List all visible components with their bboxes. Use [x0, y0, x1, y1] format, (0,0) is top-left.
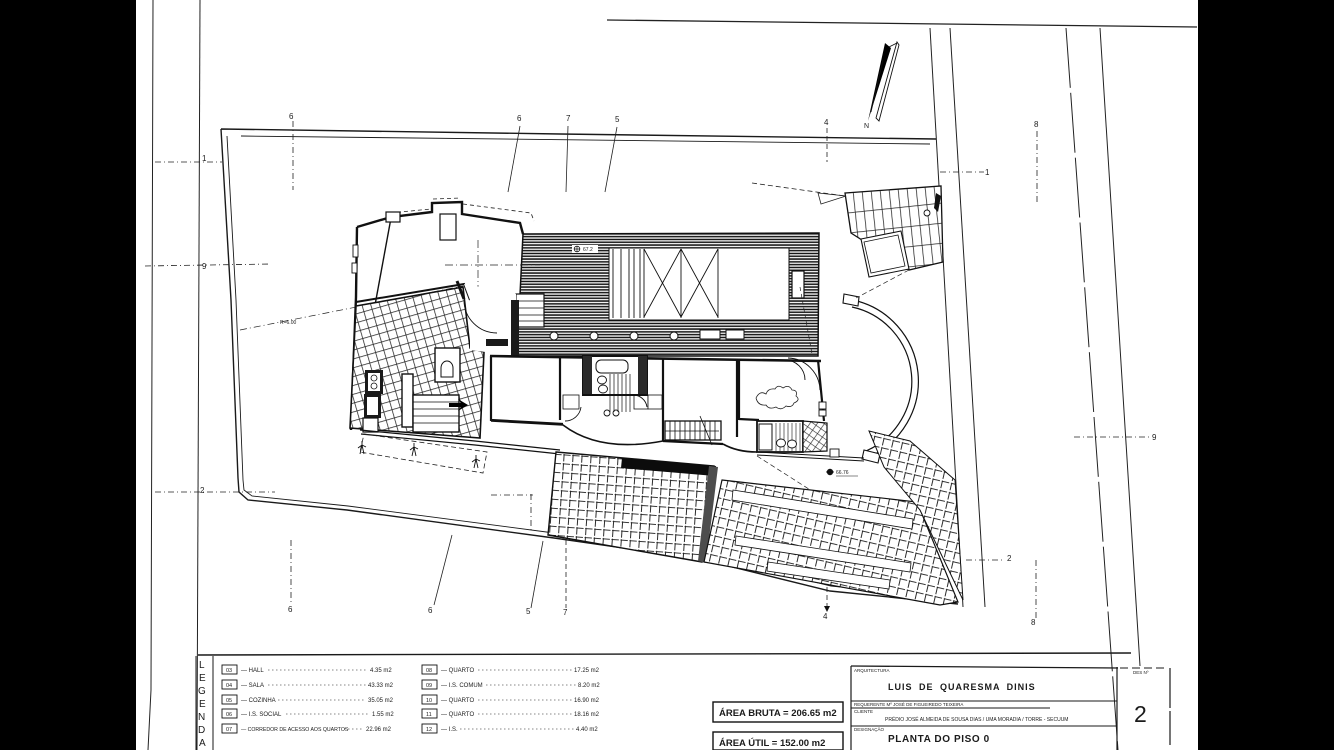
svg-text:03: 03	[226, 668, 232, 674]
svg-text:— HALL: — HALL	[241, 668, 264, 674]
svg-text:6: 6	[517, 114, 522, 123]
svg-text:4: 4	[824, 118, 829, 127]
svg-text:17.25 m2: 17.25 m2	[574, 668, 600, 674]
svg-text:PLANTA DO PISO 0: PLANTA DO PISO 0	[888, 734, 990, 745]
svg-text:2: 2	[200, 486, 205, 495]
svg-text:22.96 m2: 22.96 m2	[366, 727, 392, 733]
svg-text:DESIGNAÇÃO: DESIGNAÇÃO	[854, 726, 885, 732]
svg-text:04: 04	[226, 683, 232, 689]
svg-text:18.16 m2: 18.16 m2	[574, 712, 600, 718]
svg-text:N: N	[864, 123, 869, 130]
svg-text:66.76: 66.76	[836, 470, 849, 476]
svg-text:2: 2	[1007, 554, 1012, 563]
svg-text:6: 6	[428, 606, 433, 615]
svg-text:— I.S. SOCIAL: — I.S. SOCIAL	[241, 712, 282, 718]
svg-text:— I.S. COMUM: — I.S. COMUM	[441, 683, 483, 689]
svg-text:08: 08	[426, 668, 432, 674]
svg-text:PRÉDIO JOSÉ ALMEIDA DE SOU: PRÉDIO JOSÉ ALMEIDA DE SOUSA DIAS / UMA …	[885, 716, 1068, 723]
svg-text:16.90 m2: 16.90 m2	[574, 698, 600, 704]
svg-text:— COZINHA: — COZINHA	[241, 698, 276, 704]
svg-text:2: 2	[1134, 701, 1147, 727]
svg-text:D: D	[198, 725, 205, 736]
svg-text:8.20 m2: 8.20 m2	[578, 683, 600, 689]
svg-text:— CORREDOR DE ACESSO AOS QUART: — CORREDOR DE ACESSO AOS QUARTOS	[241, 727, 349, 733]
svg-text:1: 1	[202, 154, 207, 163]
svg-text:REQUERENTE Mº JOSÉ DE FIGUE: REQUERENTE Mº JOSÉ DE FIGUEIREDO TEIXEIR…	[854, 701, 963, 707]
svg-text:L: L	[199, 660, 205, 671]
svg-text:43.33 m2: 43.33 m2	[368, 683, 394, 689]
svg-text:ÁREA ÚTIL = 152.00 m2: ÁREA ÚTIL = 152.00 m2	[719, 737, 825, 749]
svg-text:— QUARTO: — QUARTO	[441, 668, 474, 674]
svg-text:4: 4	[823, 612, 828, 621]
svg-text:5: 5	[615, 115, 620, 124]
svg-text:07: 07	[226, 727, 232, 733]
svg-text:7: 7	[563, 608, 568, 617]
svg-text:— QUARTO: — QUARTO	[441, 698, 474, 704]
svg-text:CLIENTE: CLIENTE	[854, 709, 873, 714]
svg-text:6: 6	[289, 112, 294, 121]
svg-text:— QUARTO: — QUARTO	[441, 712, 474, 718]
svg-text:E: E	[199, 699, 206, 710]
svg-text:ÁREA BRUTA = 206.65 m2: ÁREA BRUTA = 206.65 m2	[719, 708, 837, 719]
svg-text:5: 5	[526, 607, 531, 616]
svg-text:6: 6	[288, 605, 293, 614]
svg-text:09: 09	[426, 683, 432, 689]
svg-text:8: 8	[1034, 120, 1039, 129]
svg-text:9: 9	[202, 262, 207, 271]
svg-text:9: 9	[1152, 433, 1157, 442]
svg-text:DES Nº: DES Nº	[1133, 670, 1149, 675]
svg-text:7: 7	[566, 114, 571, 123]
svg-text:05: 05	[226, 698, 232, 704]
svg-text:ARQUITECTURA: ARQUITECTURA	[854, 668, 890, 673]
svg-text:G: G	[198, 686, 206, 697]
svg-text:4.35 m2: 4.35 m2	[370, 668, 392, 674]
svg-text:1.55 m2: 1.55 m2	[372, 712, 394, 718]
svg-text:11: 11	[426, 712, 432, 718]
svg-text:— SALA: — SALA	[241, 683, 264, 689]
svg-text:N: N	[198, 712, 205, 723]
svg-text:R=6.00: R=6.00	[280, 320, 296, 326]
svg-text:06: 06	[226, 712, 232, 718]
svg-text:67.2: 67.2	[583, 247, 593, 253]
svg-text:LUIS DE QUARESMA DINIS: LUIS DE QUARESMA DINIS	[888, 682, 1036, 692]
svg-text:12: 12	[426, 727, 432, 733]
svg-text:A: A	[199, 738, 206, 749]
svg-text:35.05 m2: 35.05 m2	[368, 698, 394, 704]
svg-text:10: 10	[426, 698, 432, 704]
svg-text:4.40 m2: 4.40 m2	[576, 727, 598, 733]
svg-text:1: 1	[985, 168, 990, 177]
svg-text:— I.S.: — I.S.	[441, 727, 458, 733]
svg-text:E: E	[199, 673, 206, 684]
svg-text:8: 8	[1031, 618, 1036, 627]
